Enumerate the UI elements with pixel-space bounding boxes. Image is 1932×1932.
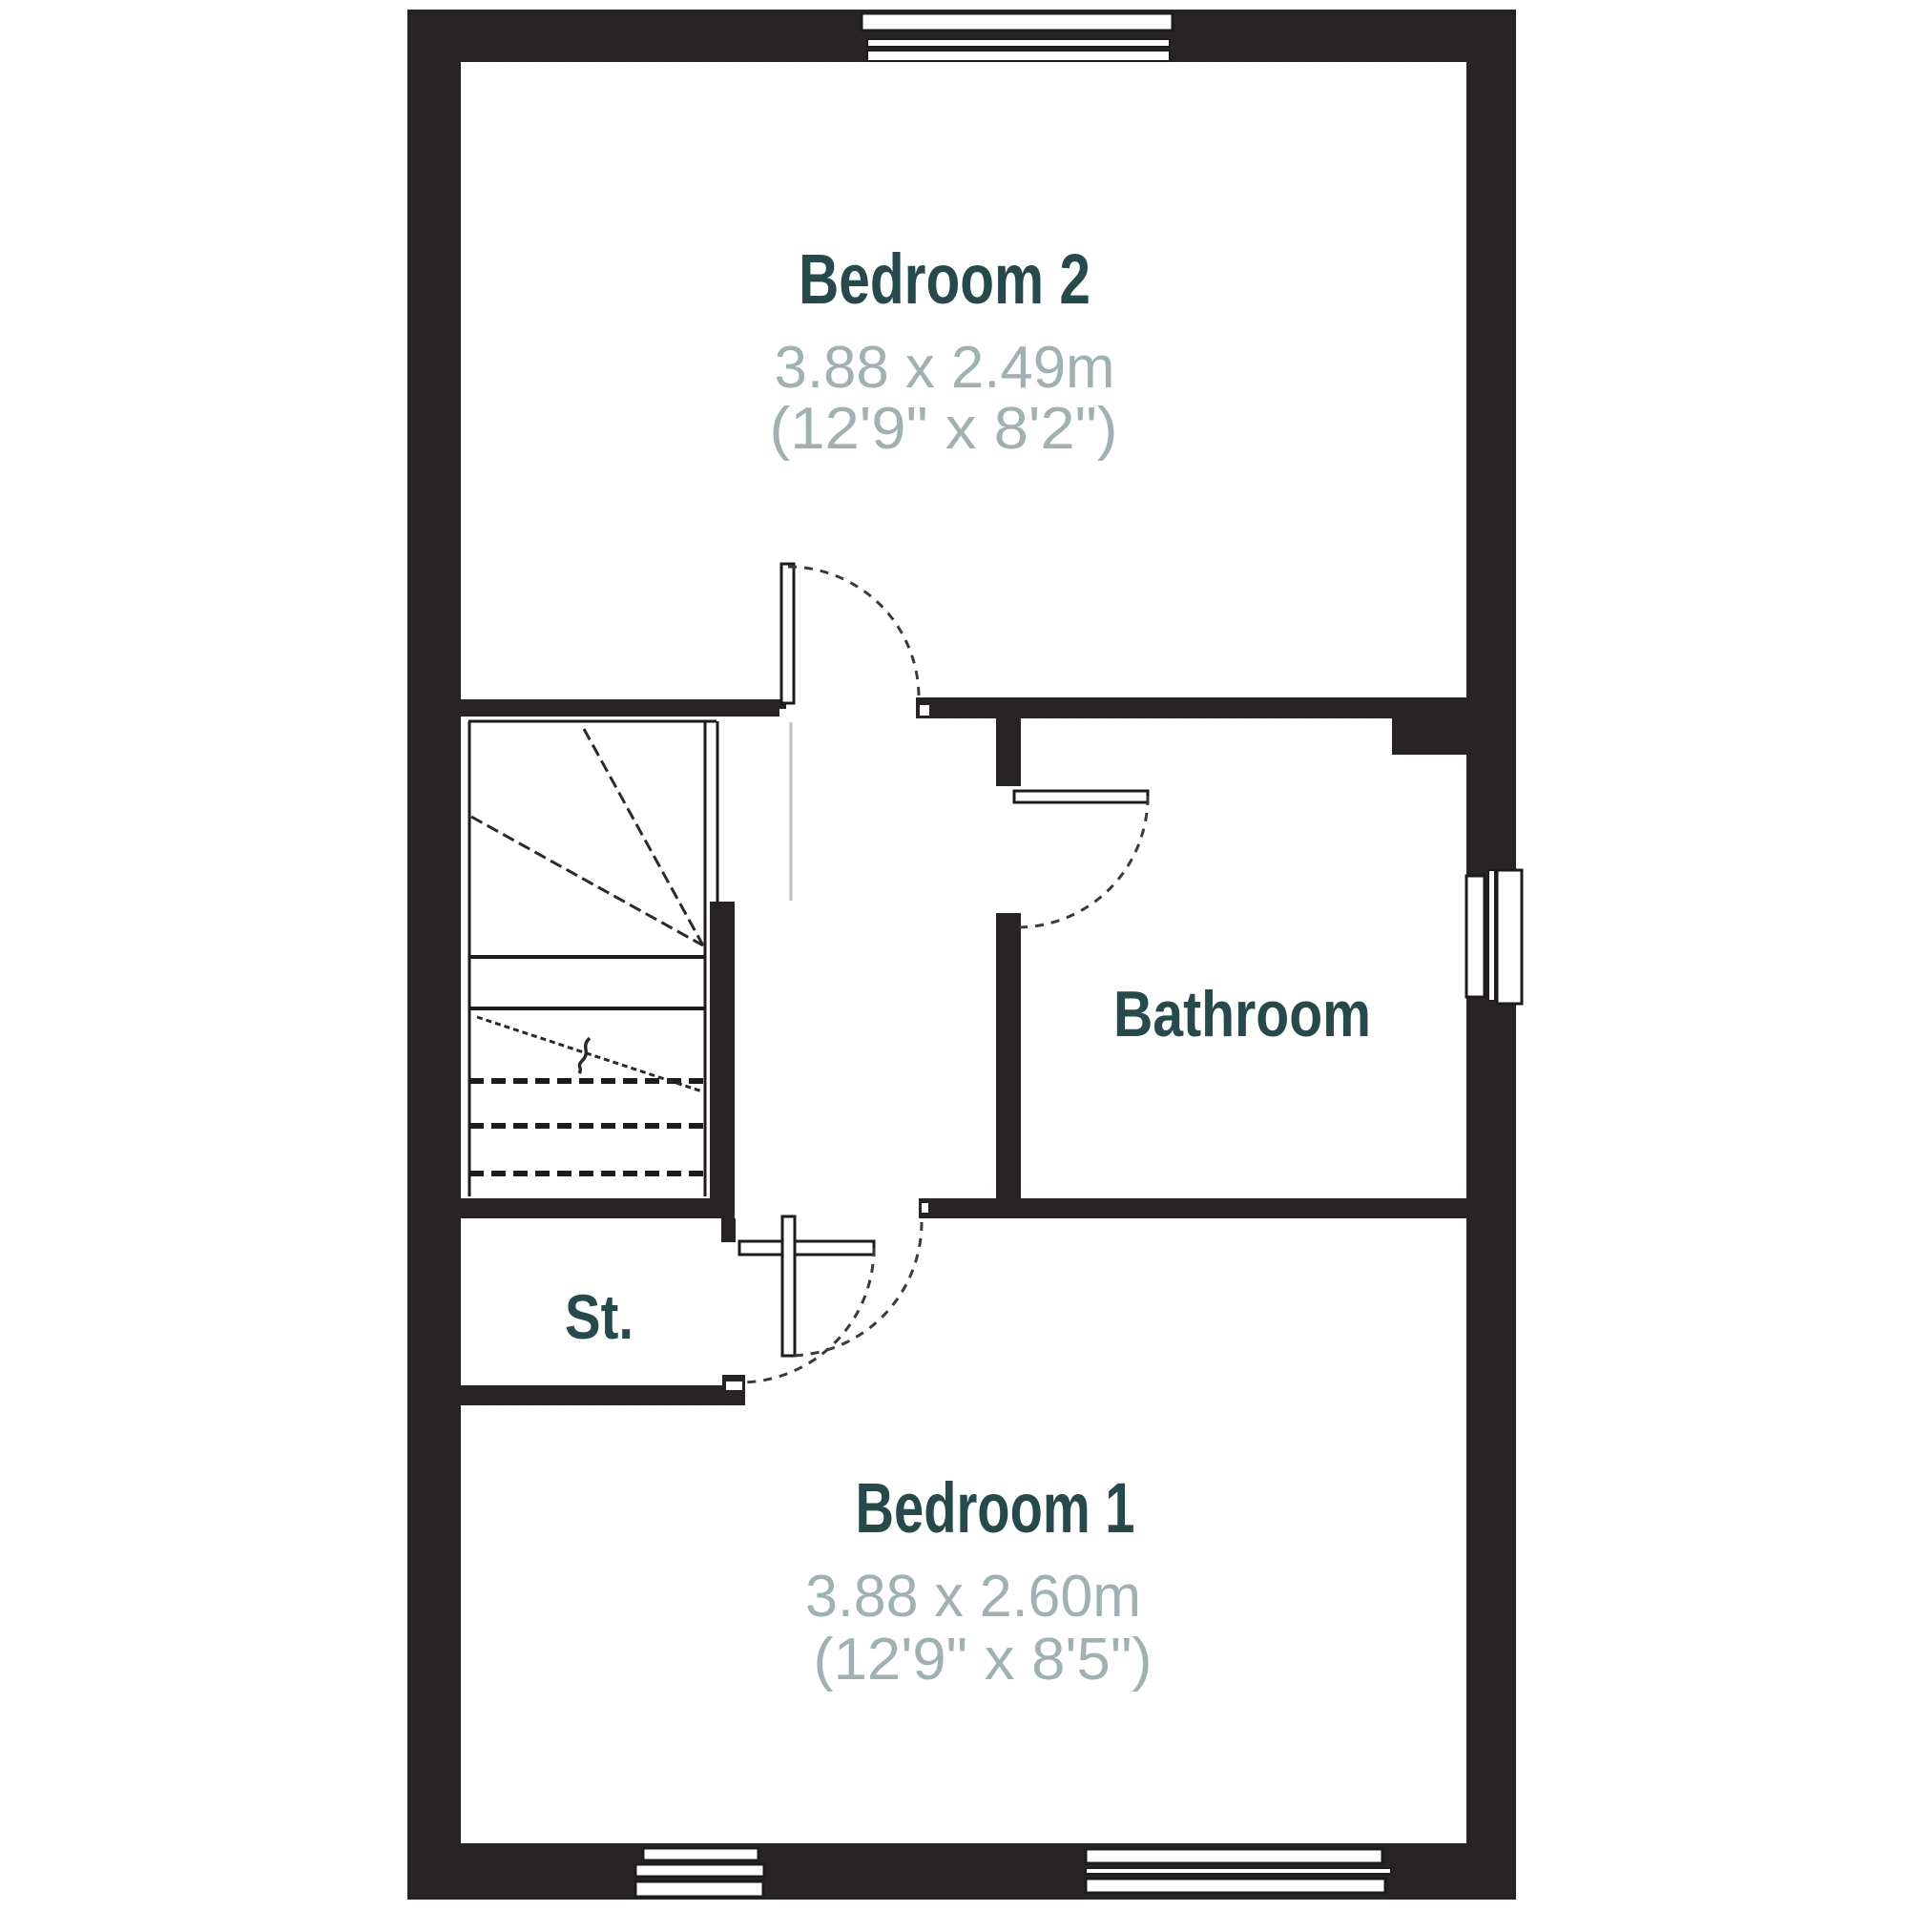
svg-text:3.88 x 2.49m: 3.88 x 2.49m	[775, 335, 1115, 401]
svg-text:Bathroom: Bathroom	[1113, 978, 1371, 1050]
svg-text:(12'9" x 8'5"): (12'9" x 8'5")	[814, 1627, 1153, 1693]
svg-text:(12'9" x 8'2"): (12'9" x 8'2")	[770, 396, 1118, 462]
svg-text:St.: St.	[565, 1281, 634, 1352]
svg-text:Bedroom 1: Bedroom 1	[856, 1468, 1135, 1548]
svg-text:3.88 x 2.60m: 3.88 x 2.60m	[805, 1564, 1141, 1630]
svg-text:Bedroom 2: Bedroom 2	[799, 239, 1091, 319]
